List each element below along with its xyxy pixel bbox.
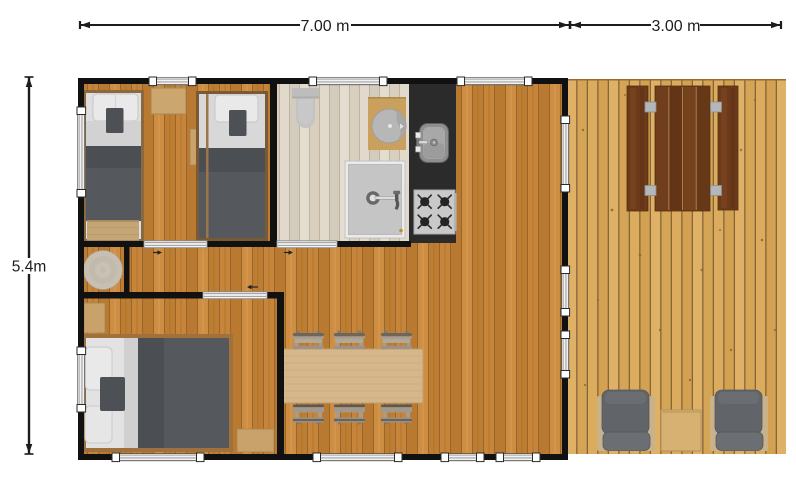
svg-text:7.00 m: 7.00 m <box>301 18 350 35</box>
svg-text:5.4m: 5.4m <box>12 259 46 276</box>
svg-text:3.00 m: 3.00 m <box>652 18 701 35</box>
